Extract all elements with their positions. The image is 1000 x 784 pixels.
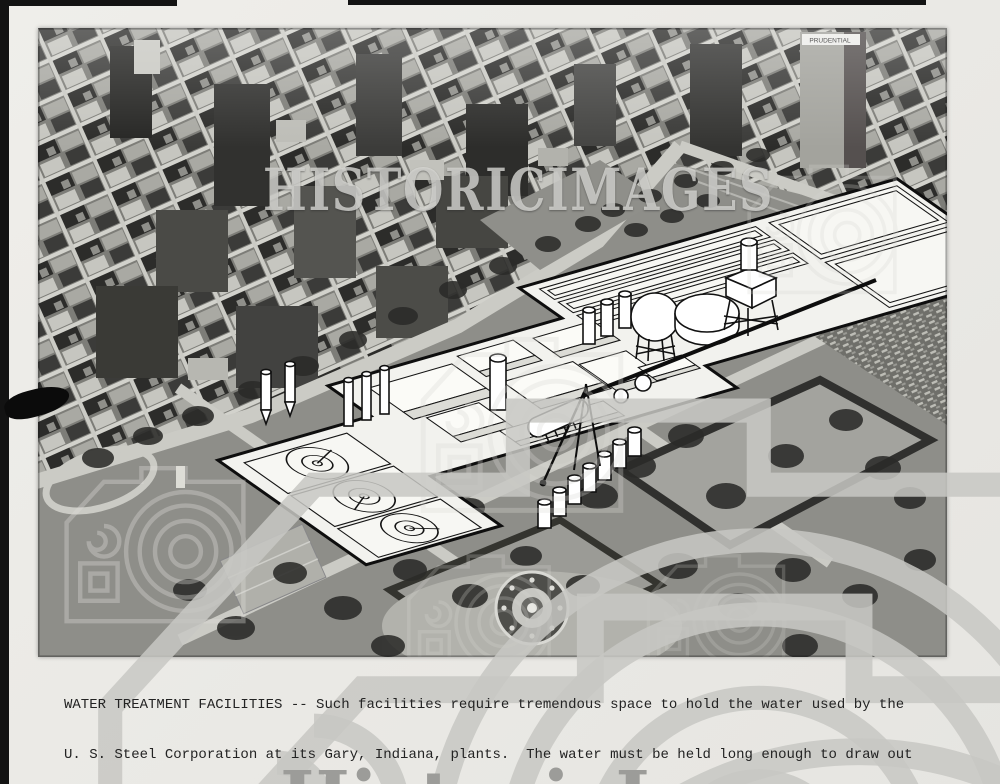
press-photo-scan: PRUDENTIAL xyxy=(0,0,1000,784)
film-edge-top xyxy=(9,0,177,6)
caption-line: WATER TREATMENT FACILITIES -- Such facil… xyxy=(64,697,964,714)
historicimages-logo: HistoricImages xyxy=(280,756,917,784)
film-edge-top xyxy=(348,0,926,5)
photo-scene: PRUDENTIAL xyxy=(38,28,947,657)
film-edge-left xyxy=(0,0,9,784)
aerial-photo: PRUDENTIAL xyxy=(38,28,947,657)
small-clarifier xyxy=(635,375,651,391)
photo-haze xyxy=(38,28,947,148)
